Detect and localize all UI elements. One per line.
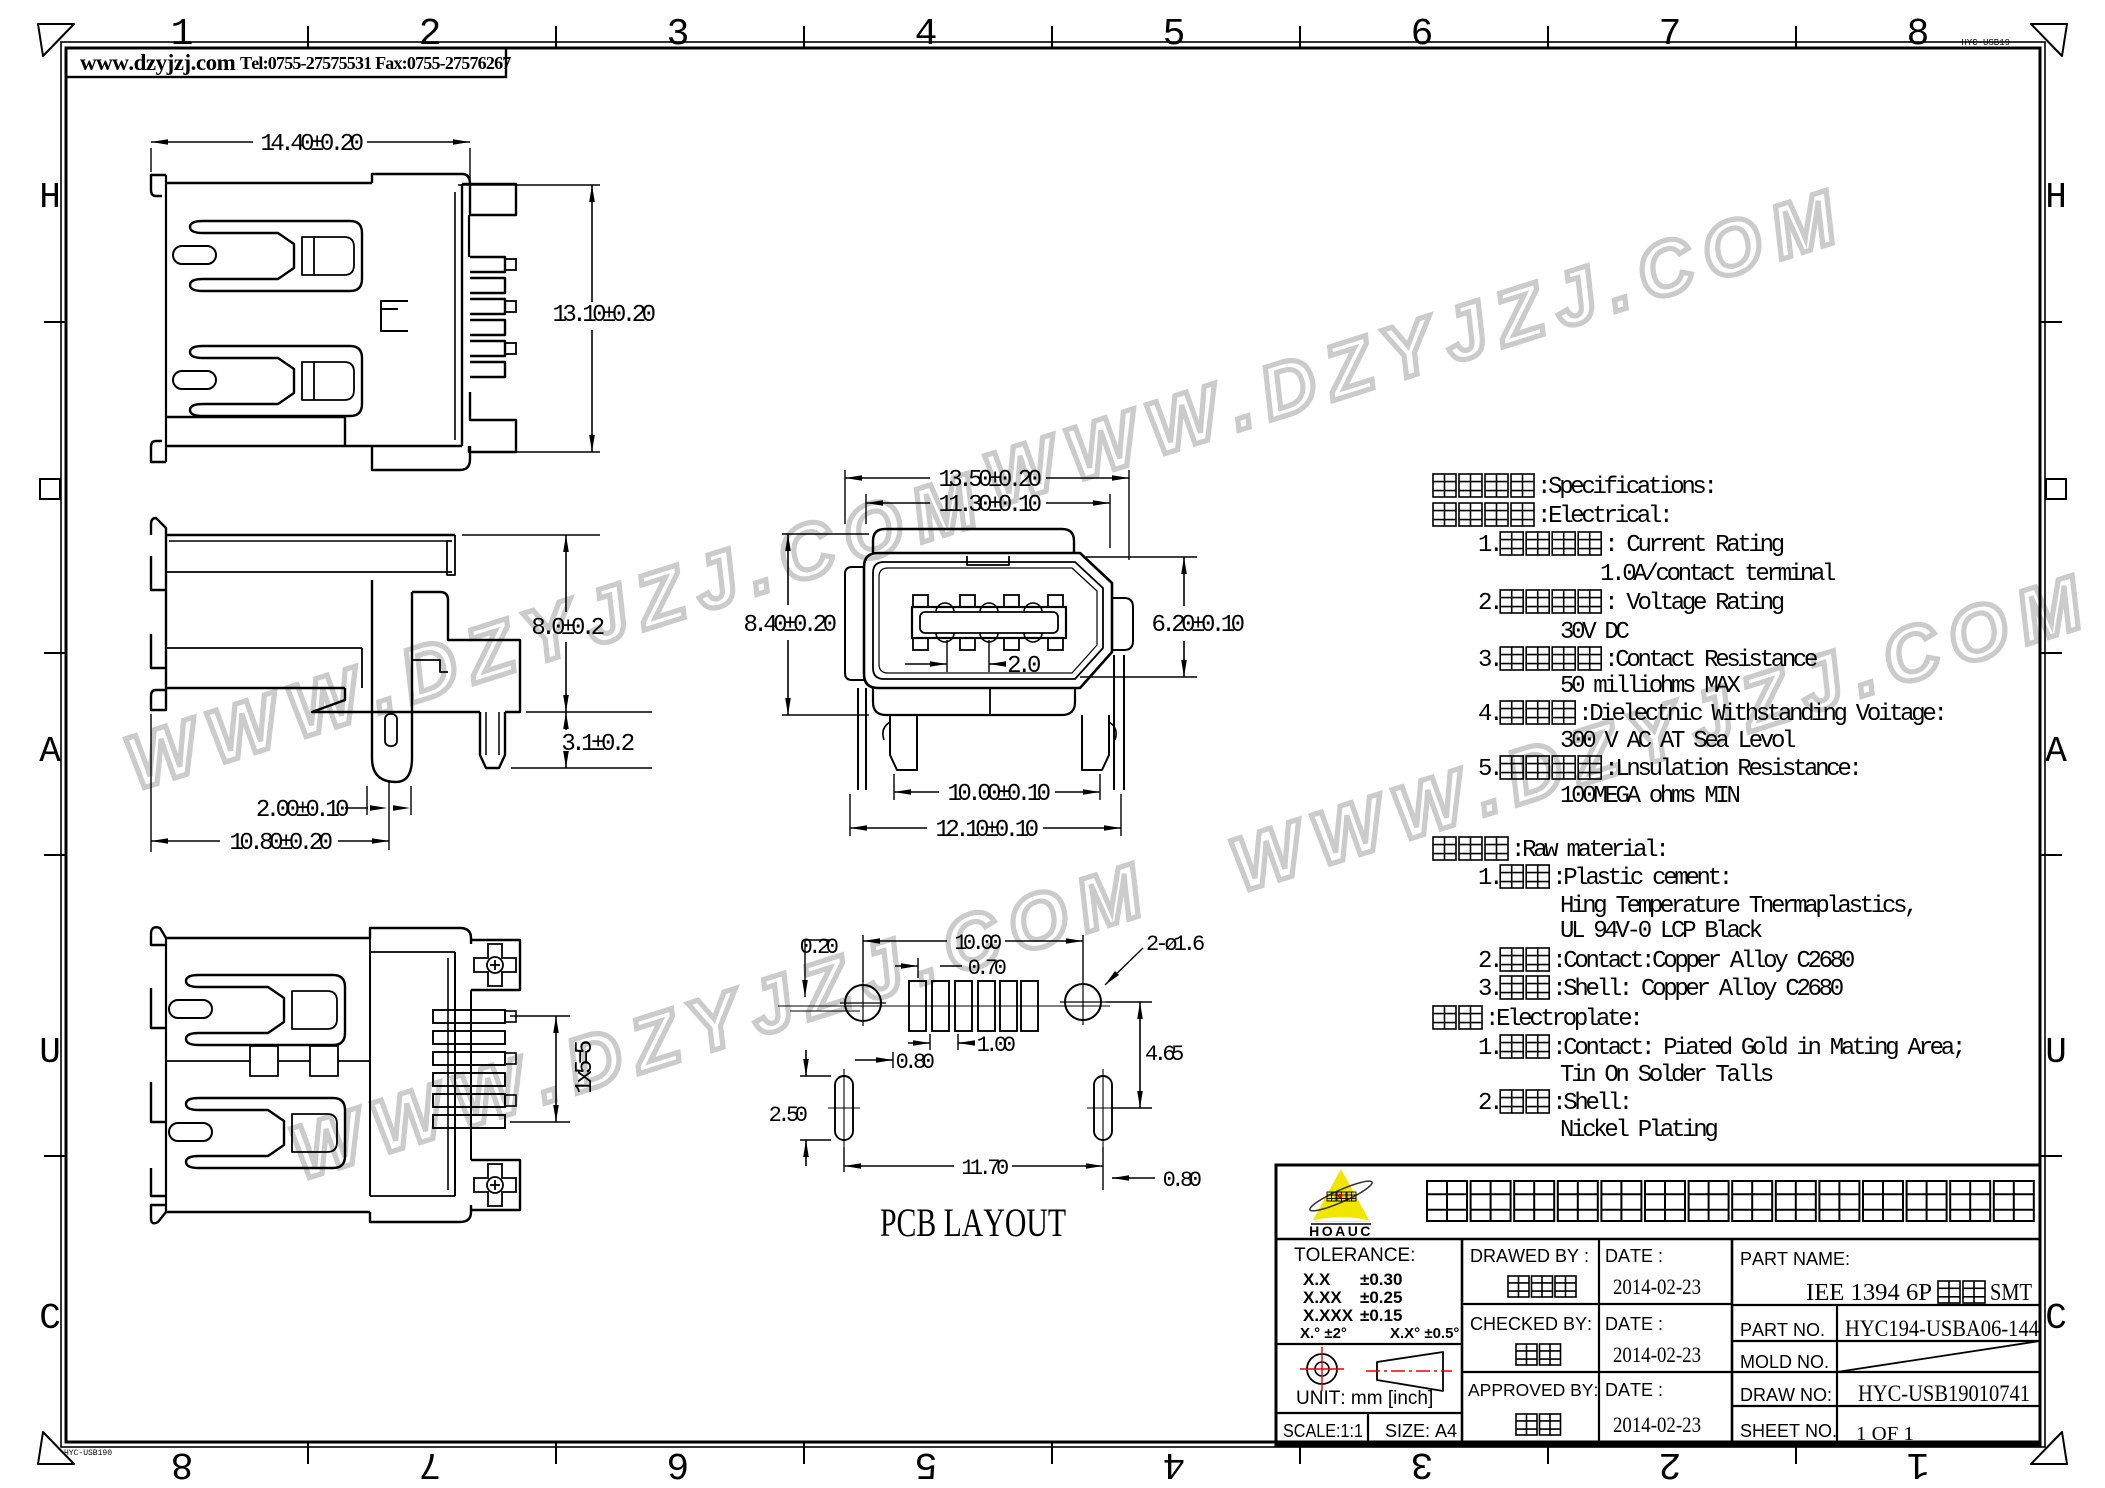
svg-text:2.00±0.10: 2.00±0.10	[256, 797, 348, 824]
svg-text:TOLERANCE:: TOLERANCE:	[1294, 1245, 1415, 1266]
svg-text:A: A	[39, 731, 61, 772]
svg-text:2014-02-23: 2014-02-23	[1613, 1412, 1701, 1437]
svg-text:3.: 3.	[1478, 976, 1500, 1003]
svg-text:3.: 3.	[1478, 647, 1500, 674]
svg-text:Nickel Plating: Nickel Plating	[1560, 1117, 1717, 1144]
svg-text:Hing Temperature Tnermaplasti: Hing Temperature Tnermaplastics,	[1560, 893, 1915, 920]
svg-text:1.: 1.	[1478, 1035, 1500, 1062]
svg-text:HYC194-USBA06-144: HYC194-USBA06-144	[1845, 1316, 2039, 1341]
svg-text:HYC-USB19010741: HYC-USB19010741	[1858, 1381, 2030, 1406]
svg-text:1.00: 1.00	[977, 1033, 1015, 1058]
svg-text:10.00±0.10: 10.00±0.10	[947, 781, 1049, 808]
svg-text::Contact: Piated Gold in Matin: :Contact: Piated Gold in Mating Area;	[1552, 1035, 1963, 1062]
svg-text:Tel:0755-27575531 Fax:0755-27: Tel:0755-27575531 Fax:0755-27576267	[240, 53, 511, 73]
svg-text:2-ø1.6: 2-ø1.6	[1146, 932, 1204, 957]
svg-text:www.dzyjzj.com: www.dzyjzj.com	[80, 50, 236, 75]
svg-text:APPROVED BY:: APPROVED BY:	[1468, 1380, 1598, 1400]
svg-text:8.0±0.2: 8.0±0.2	[531, 615, 603, 642]
svg-text:14.40±0.20: 14.40±0.20	[260, 131, 362, 158]
svg-text:4: 4	[1163, 1442, 1186, 1485]
svg-text::Shell:: :Shell:	[1552, 1090, 1630, 1117]
svg-text:X.XX: X.XX	[1303, 1288, 1342, 1307]
svg-text:4: 4	[915, 13, 938, 56]
svg-text:2.: 2.	[1478, 1090, 1500, 1117]
svg-text::Specifications:: :Specifications:	[1537, 474, 1715, 501]
svg-text:13.50±0.20: 13.50±0.20	[938, 467, 1040, 494]
svg-text:4.65: 4.65	[1145, 1042, 1183, 1067]
svg-text::Electrical:: :Electrical:	[1537, 503, 1670, 530]
svg-text:DRAW NO:: DRAW NO:	[1740, 1385, 1832, 1405]
svg-text:10.80±0.20: 10.80±0.20	[229, 830, 331, 857]
svg-text:0.20: 0.20	[800, 935, 838, 960]
svg-text:3: 3	[1411, 1442, 1434, 1485]
svg-text:SIZE: A4: SIZE: A4	[1385, 1421, 1457, 1441]
svg-text:1: 1	[1907, 1442, 1930, 1485]
svg-text:1x5=5: 1x5=5	[572, 1041, 599, 1094]
svg-text:DATE :: DATE :	[1605, 1314, 1663, 1334]
svg-text:A: A	[2045, 731, 2067, 772]
svg-text:7: 7	[419, 1442, 442, 1485]
svg-text:1.0A/contact terminal: 1.0A/contact terminal	[1600, 561, 1836, 588]
svg-text:±0.15: ±0.15	[1360, 1306, 1402, 1325]
svg-text:50 milliohms MAX: 50 milliohms MAX	[1560, 673, 1741, 700]
svg-text:2.: 2.	[1478, 590, 1500, 617]
svg-text:: Current Rating: : Current Rating	[1604, 532, 1784, 559]
svg-text:2.0: 2.0	[1007, 653, 1040, 680]
svg-text:8.40±0.20: 8.40±0.20	[743, 612, 835, 639]
svg-text:PCB LAYOUT: PCB LAYOUT	[880, 1200, 1066, 1245]
svg-text::Raw material:: :Raw material:	[1511, 837, 1666, 864]
svg-text:DATE :: DATE :	[1605, 1246, 1663, 1266]
svg-text:8: 8	[171, 1442, 194, 1485]
svg-text:11.30±0.10: 11.30±0.10	[938, 492, 1040, 519]
svg-text:C: C	[2045, 1298, 2067, 1339]
svg-text:1 OF 1: 1 OF 1	[1856, 1423, 1914, 1445]
svg-text:SHEET NO.: SHEET NO.	[1740, 1421, 1837, 1441]
svg-text:C: C	[39, 1298, 61, 1339]
svg-text:CHECKED BY:: CHECKED BY:	[1470, 1314, 1592, 1334]
svg-text::Contact:Copper Alloy C2680: :Contact:Copper Alloy C2680	[1552, 948, 1854, 975]
svg-text:±0.25: ±0.25	[1360, 1288, 1402, 1307]
svg-text:3: 3	[667, 13, 690, 56]
svg-text:0.70: 0.70	[968, 956, 1006, 981]
svg-text:12.10±0.10: 12.10±0.10	[935, 817, 1037, 844]
svg-text:13.10±0.20: 13.10±0.20	[552, 302, 654, 329]
svg-text::Dielectnic Withstanding Voita: :Dielectnic Withstanding Voitage:	[1578, 701, 1944, 728]
svg-text:±0.30: ±0.30	[1360, 1270, 1402, 1289]
svg-text:DATE :: DATE :	[1605, 1380, 1663, 1400]
svg-text:11.70: 11.70	[961, 1156, 1008, 1181]
svg-text:2014-02-23: 2014-02-23	[1613, 1274, 1701, 1299]
svg-text:10.00: 10.00	[954, 931, 1001, 956]
svg-text:SCALE:1:1: SCALE:1:1	[1283, 1421, 1363, 1441]
svg-text:UNIT: mm [inch]: UNIT: mm [inch]	[1296, 1388, 1433, 1409]
svg-text:6: 6	[667, 1442, 690, 1485]
svg-text:4.: 4.	[1478, 701, 1500, 728]
svg-text:100MEGA ohms MIN: 100MEGA ohms MIN	[1560, 783, 1740, 810]
svg-text:X.XXX: X.XXX	[1303, 1306, 1354, 1325]
svg-text:U: U	[2045, 1032, 2067, 1073]
svg-text:DRAWED BY :: DRAWED BY :	[1470, 1246, 1589, 1266]
svg-text:SMT: SMT	[1990, 1280, 2032, 1306]
svg-text:H: H	[39, 177, 61, 218]
svg-text:5: 5	[1163, 13, 1186, 56]
svg-text:2: 2	[419, 13, 442, 56]
svg-text::Contact Resistance: :Contact Resistance	[1604, 647, 1817, 674]
svg-text:7: 7	[1659, 13, 1682, 56]
svg-text:X.X° ±0.5°: X.X° ±0.5°	[1390, 1325, 1459, 1342]
svg-text:H: H	[2045, 177, 2067, 218]
svg-text:300 V AC AT Sea Levol: 300 V AC AT Sea Levol	[1560, 728, 1796, 755]
svg-text:2.50: 2.50	[769, 1103, 807, 1128]
svg-text:HOAUC: HOAUC	[1309, 1223, 1373, 1239]
svg-text:1.: 1.	[1478, 865, 1500, 892]
svg-text::Plastic cement:: :Plastic cement:	[1552, 865, 1730, 892]
svg-text:2: 2	[1659, 1442, 1682, 1485]
svg-text:: Voltage Rating: : Voltage Rating	[1604, 590, 1784, 617]
svg-text:X.X: X.X	[1303, 1270, 1331, 1289]
svg-text:30V DC: 30V DC	[1560, 619, 1630, 646]
svg-text:X.° ±2°: X.° ±2°	[1300, 1325, 1347, 1342]
svg-text:0.80: 0.80	[896, 1050, 934, 1075]
svg-text:0.80: 0.80	[1163, 1168, 1201, 1193]
svg-text:1.: 1.	[1478, 532, 1500, 559]
svg-text:2014-02-23: 2014-02-23	[1613, 1342, 1701, 1367]
svg-text:PART NO.: PART NO.	[1740, 1320, 1825, 1340]
svg-text:6.20±0.10: 6.20±0.10	[1151, 612, 1243, 639]
svg-text:U: U	[39, 1032, 61, 1073]
svg-text:6: 6	[1411, 13, 1434, 56]
svg-text:IEE 1394 6P: IEE 1394 6P	[1806, 1280, 1932, 1306]
svg-text:HYC-USB19: HYC-USB19	[1961, 38, 2010, 48]
svg-text::Lnsulation Resistance:: :Lnsulation Resistance:	[1604, 756, 1859, 783]
svg-text:HYC-USB190: HYC-USB190	[64, 1449, 112, 1458]
svg-text::Electroplate:: :Electroplate:	[1485, 1006, 1640, 1033]
svg-text:5.: 5.	[1478, 756, 1500, 783]
svg-text:UL 94V-0 LCP Black: UL 94V-0 LCP Black	[1560, 918, 1763, 945]
svg-text:5: 5	[915, 1442, 938, 1485]
svg-text:8: 8	[1907, 13, 1930, 56]
svg-text:3.1±0.2: 3.1±0.2	[561, 731, 633, 758]
svg-text::Shell: Copper Alloy C2680: :Shell: Copper Alloy C2680	[1552, 976, 1843, 1003]
svg-text:2.: 2.	[1478, 948, 1500, 975]
svg-text:PART NAME:: PART NAME:	[1740, 1249, 1850, 1269]
svg-text:MOLD NO.: MOLD NO.	[1740, 1352, 1829, 1372]
svg-text:Tin On Solder Talls: Tin On Solder Talls	[1560, 1062, 1773, 1089]
